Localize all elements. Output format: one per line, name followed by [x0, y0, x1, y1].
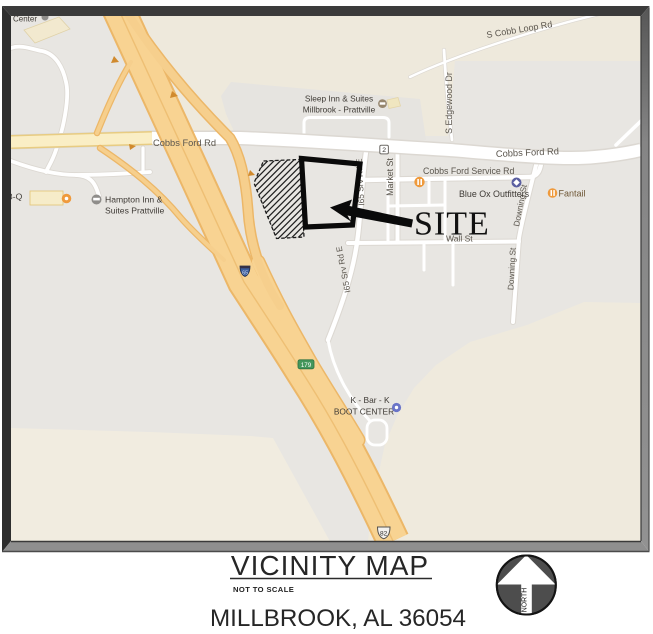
- svg-text:NORTH: NORTH: [522, 588, 529, 612]
- svg-text:Sleep Inn & Suites: Sleep Inn & Suites: [305, 94, 373, 104]
- svg-text:Fantail: Fantail: [559, 189, 586, 199]
- svg-text:BOOT CENTER: BOOT CENTER: [334, 407, 394, 417]
- svg-text:Hampton Inn &: Hampton Inn &: [105, 195, 163, 205]
- svg-text:SITE: SITE: [414, 206, 490, 243]
- svg-text:Cobbs Ford Rd: Cobbs Ford Rd: [153, 138, 216, 148]
- svg-text:NOT TO SCALE: NOT TO SCALE: [233, 585, 294, 594]
- svg-text:Cobbs Ford Service Rd: Cobbs Ford Service Rd: [423, 166, 515, 176]
- svg-text:K - Bar - K: K - Bar - K: [350, 395, 390, 405]
- svg-text:Blue Ox Outfitters: Blue Ox Outfitters: [459, 189, 530, 199]
- svg-text:S Edgewood Dr: S Edgewood Dr: [444, 72, 454, 134]
- svg-text:Millbrook - Prattville: Millbrook - Prattville: [303, 105, 376, 115]
- svg-text:179: 179: [301, 362, 312, 369]
- svg-text:Market St: Market St: [385, 158, 395, 196]
- svg-text:82: 82: [380, 531, 388, 538]
- svg-text:2: 2: [382, 147, 386, 154]
- svg-text:65: 65: [242, 271, 248, 277]
- svg-text:VICINITY MAP: VICINITY MAP: [231, 550, 429, 581]
- svg-text:MILLBROOK, AL 36054: MILLBROOK, AL 36054: [210, 605, 466, 632]
- svg-text:Suites Prattville: Suites Prattville: [105, 206, 164, 216]
